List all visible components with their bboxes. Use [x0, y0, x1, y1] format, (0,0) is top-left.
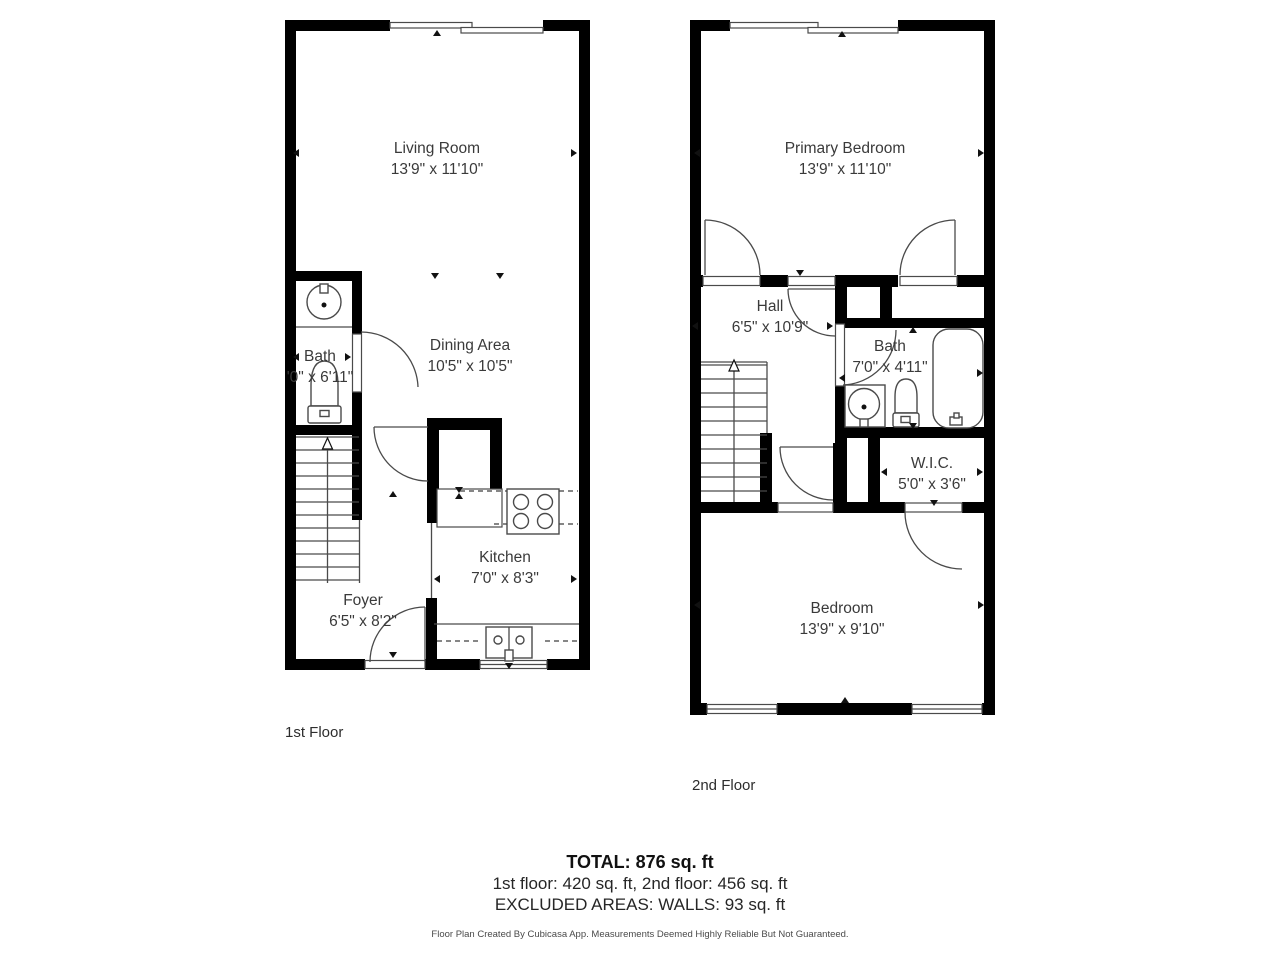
room-dims: 13'9" x 9'10" [799, 620, 884, 641]
room-name: Foyer [329, 591, 397, 612]
room-label-dining-area: Dining Area 10'5" x 10'5" [427, 336, 512, 377]
toilet [893, 379, 919, 427]
room-label-kitchen: Kitchen 7'0" x 8'3" [471, 548, 539, 589]
door-arc [703, 220, 957, 286]
room-label-bath-2: Bath 7'0" x 4'11" [852, 337, 927, 378]
room-label-bath-1: Bath '0" x 6'11" [287, 347, 354, 388]
floor-plan-page: Living Room 13'9" x 11'10" Bath '0" x 6'… [0, 0, 1280, 960]
floor-caption-2nd: 2nd Floor [692, 777, 755, 794]
bath-sink [845, 385, 885, 427]
room-dims: 10'5" x 10'5" [427, 357, 512, 378]
area-summary: TOTAL: 876 sq. ft 1st floor: 420 sq. ft,… [0, 851, 1280, 915]
room-name: Hall [732, 297, 808, 318]
room-dims: 7'0" x 4'11" [852, 358, 927, 379]
window [730, 23, 898, 38]
room-name: Living Room [391, 139, 483, 160]
room-label-living-room: Living Room 13'9" x 11'10" [391, 139, 483, 180]
room-name: Bath [852, 337, 927, 358]
floor-caption-1st: 1st Floor [285, 724, 343, 741]
room-dims: 6'5" x 10'9" [732, 318, 808, 339]
total-area: TOTAL: 876 sq. ft [0, 851, 1280, 873]
door-arc [374, 427, 428, 481]
disclaimer: Floor Plan Created By Cubicasa App. Meas… [0, 929, 1280, 940]
floor-areas: 1st floor: 420 sq. ft, 2nd floor: 456 sq… [0, 873, 1280, 894]
door-arc [905, 503, 962, 569]
excluded-areas: EXCLUDED AREAS: WALLS: 93 sq. ft [0, 894, 1280, 915]
room-dims: 13'9" x 11'10" [785, 160, 906, 181]
room-name: Primary Bedroom [785, 139, 906, 160]
room-dims: 6'5" x 8'2" [329, 612, 397, 633]
room-label-bedroom: Bedroom 13'9" x 9'10" [799, 599, 884, 640]
window [390, 23, 543, 37]
room-dims: 13'9" x 11'10" [391, 160, 483, 181]
room-name: Bedroom [799, 599, 884, 620]
room-label-primary-bedroom: Primary Bedroom 13'9" x 11'10" [785, 139, 906, 180]
room-dims: '0" x 6'11" [287, 368, 354, 389]
room-dims: 5'0" x 3'6" [898, 475, 966, 496]
room-name: W.I.C. [898, 454, 966, 475]
room-dims: 7'0" x 8'3" [471, 569, 539, 590]
floor-plan-canvas [0, 0, 1280, 960]
bath-sink [296, 284, 352, 327]
room-name: Kitchen [471, 548, 539, 569]
bathtub [933, 329, 983, 428]
room-name: Dining Area [427, 336, 512, 357]
room-label-wic: W.I.C. 5'0" x 3'6" [898, 454, 966, 495]
room-label-hall: Hall 6'5" x 10'9" [732, 297, 808, 338]
stairs [296, 437, 360, 583]
room-name: Bath [287, 347, 354, 368]
door-arc [353, 332, 419, 392]
room-label-foyer: Foyer 6'5" x 8'2" [329, 591, 397, 632]
stairs [701, 360, 767, 502]
cabinet [437, 489, 502, 527]
window [480, 661, 547, 669]
door-arc [778, 447, 833, 512]
